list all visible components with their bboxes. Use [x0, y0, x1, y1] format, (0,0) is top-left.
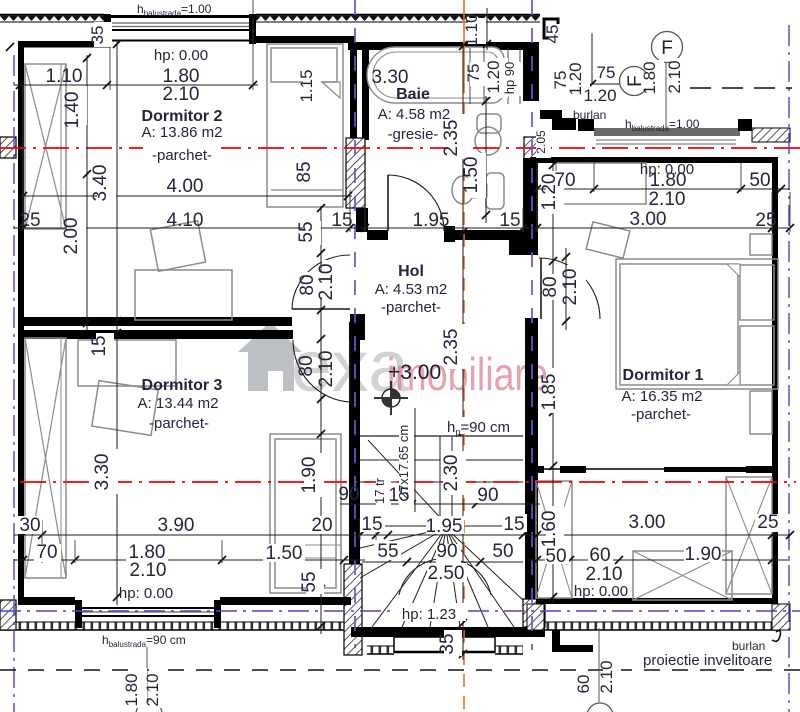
svg-text:1.60: 1.60	[539, 511, 560, 548]
svg-text:3.30: 3.30	[372, 67, 409, 88]
svg-text:25: 25	[755, 210, 776, 231]
svg-text:-parchet-: -parchet-	[149, 415, 209, 432]
svg-text:hp: 0.00: hp: 0.00	[574, 583, 628, 600]
svg-text:3.00: 3.00	[629, 512, 666, 533]
svg-text:1.50: 1.50	[266, 543, 303, 564]
svg-text:A: 4.58 m2: A: 4.58 m2	[378, 106, 451, 123]
svg-text:burlan: burlan	[573, 108, 606, 122]
svg-text:35: 35	[88, 26, 107, 45]
svg-text:1.95: 1.95	[426, 516, 463, 537]
svg-text:1.80: 1.80	[650, 170, 687, 191]
svg-text:Hol: Hol	[398, 263, 424, 280]
svg-text:1.20: 1.20	[539, 174, 560, 211]
svg-text:4.10: 4.10	[167, 210, 204, 231]
svg-text:75: 75	[464, 64, 483, 83]
svg-text:25: 25	[19, 210, 40, 231]
svg-text:Dormitor 3: Dormitor 3	[142, 377, 223, 394]
svg-text:50: 50	[492, 541, 513, 562]
svg-text:90: 90	[477, 485, 498, 506]
svg-text:Baie: Baie	[396, 86, 430, 103]
svg-text:2.10: 2.10	[130, 560, 167, 581]
svg-text:1.15: 1.15	[297, 69, 316, 102]
svg-text:80: 80	[540, 276, 561, 297]
svg-text:70: 70	[36, 542, 57, 563]
svg-text:15: 15	[388, 485, 409, 506]
svg-text:60: 60	[589, 545, 610, 566]
svg-text:burlan: burlan	[732, 639, 765, 653]
svg-text:F: F	[661, 38, 673, 59]
svg-text:1.80: 1.80	[122, 673, 141, 706]
svg-text:30: 30	[19, 515, 40, 536]
svg-text:-parchet-: -parchet-	[152, 147, 212, 164]
svg-text:80: 80	[296, 355, 317, 376]
svg-text:2.10: 2.10	[665, 60, 684, 93]
svg-text:-gresie-: -gresie-	[388, 126, 439, 143]
svg-text:2.10: 2.10	[143, 673, 162, 706]
svg-text:A: 16.35 m2: A: 16.35 m2	[622, 388, 703, 405]
svg-text:1.20: 1.20	[484, 60, 503, 93]
svg-text:20: 20	[311, 515, 332, 536]
svg-text:1.90: 1.90	[685, 544, 722, 565]
svg-text:1.10: 1.10	[462, 13, 481, 46]
svg-text:-parchet-: -parchet-	[631, 406, 691, 423]
svg-text:55: 55	[377, 541, 398, 562]
svg-text:hp: 0.00: hp: 0.00	[154, 47, 208, 64]
svg-text:1.85: 1.85	[539, 374, 560, 411]
svg-text:90: 90	[338, 484, 359, 505]
svg-text:90: 90	[436, 541, 457, 562]
svg-text:50: 50	[749, 170, 770, 191]
svg-text:80: 80	[297, 274, 318, 295]
svg-text:A: 13.86 m2: A: 13.86 m2	[142, 124, 223, 141]
svg-text:55: 55	[296, 221, 317, 242]
svg-text:2.50: 2.50	[428, 563, 465, 584]
svg-text:2.05: 2.05	[534, 130, 548, 154]
svg-text:3.90: 3.90	[158, 515, 195, 536]
svg-text:hp 90: hp 90	[502, 62, 517, 95]
svg-text:15: 15	[361, 514, 382, 535]
svg-text:85: 85	[294, 161, 315, 182]
svg-text:1.10: 1.10	[46, 66, 83, 87]
svg-text:2.10: 2.10	[649, 189, 686, 210]
svg-text:Dormitor 1: Dormitor 1	[623, 367, 704, 384]
svg-text:1.50: 1.50	[461, 157, 482, 194]
svg-text:A: 4.53 m2: A: 4.53 m2	[375, 281, 448, 298]
svg-text:-parchet-: -parchet-	[381, 299, 441, 316]
svg-text:2.30: 2.30	[441, 455, 462, 492]
svg-text:2.10: 2.10	[560, 269, 581, 306]
svg-text:2.10: 2.10	[163, 84, 200, 105]
svg-text:3.30: 3.30	[92, 454, 113, 491]
svg-text:hp: 0.00: hp: 0.00	[119, 585, 173, 602]
svg-text:25: 25	[757, 512, 778, 533]
svg-text:2.35: 2.35	[441, 120, 462, 157]
svg-text:35: 35	[437, 633, 458, 654]
svg-text:+3.00: +3.00	[388, 361, 441, 384]
svg-text:55: 55	[299, 571, 320, 592]
svg-text:2.00: 2.00	[61, 218, 82, 255]
svg-text:15: 15	[503, 514, 524, 535]
svg-text:45: 45	[543, 25, 562, 44]
svg-text:1.40: 1.40	[62, 92, 83, 129]
svg-text:hp: 1.23: hp: 1.23	[402, 606, 456, 623]
svg-text:15: 15	[331, 210, 352, 231]
svg-text:2.10: 2.10	[586, 564, 623, 585]
svg-text:1.90: 1.90	[299, 457, 320, 494]
svg-text:1.20: 1.20	[566, 62, 585, 95]
svg-text:2.10: 2.10	[316, 264, 337, 301]
svg-text:2.35: 2.35	[441, 329, 462, 366]
svg-text:15: 15	[89, 335, 110, 356]
svg-text:2.10: 2.10	[597, 660, 616, 693]
svg-text:2.10: 2.10	[316, 351, 337, 388]
svg-text:4.00: 4.00	[167, 176, 204, 197]
svg-text:75: 75	[597, 63, 616, 82]
svg-text:1.20: 1.20	[583, 86, 616, 105]
svg-text:1.80: 1.80	[640, 61, 659, 94]
svg-text:Dormitor 2: Dormitor 2	[142, 108, 223, 125]
svg-text:3.00: 3.00	[630, 209, 667, 230]
svg-text:50: 50	[545, 546, 566, 567]
svg-text:3.40: 3.40	[90, 165, 111, 202]
svg-text:proiectie invelitoare: proiectie invelitoare	[643, 652, 772, 669]
svg-text:60: 60	[574, 675, 593, 694]
svg-text:15: 15	[499, 210, 520, 231]
svg-text:17 tr: 17 tr	[372, 477, 387, 504]
svg-text:A: 13.44 m2: A: 13.44 m2	[138, 395, 219, 412]
svg-text:1.95: 1.95	[413, 210, 450, 231]
